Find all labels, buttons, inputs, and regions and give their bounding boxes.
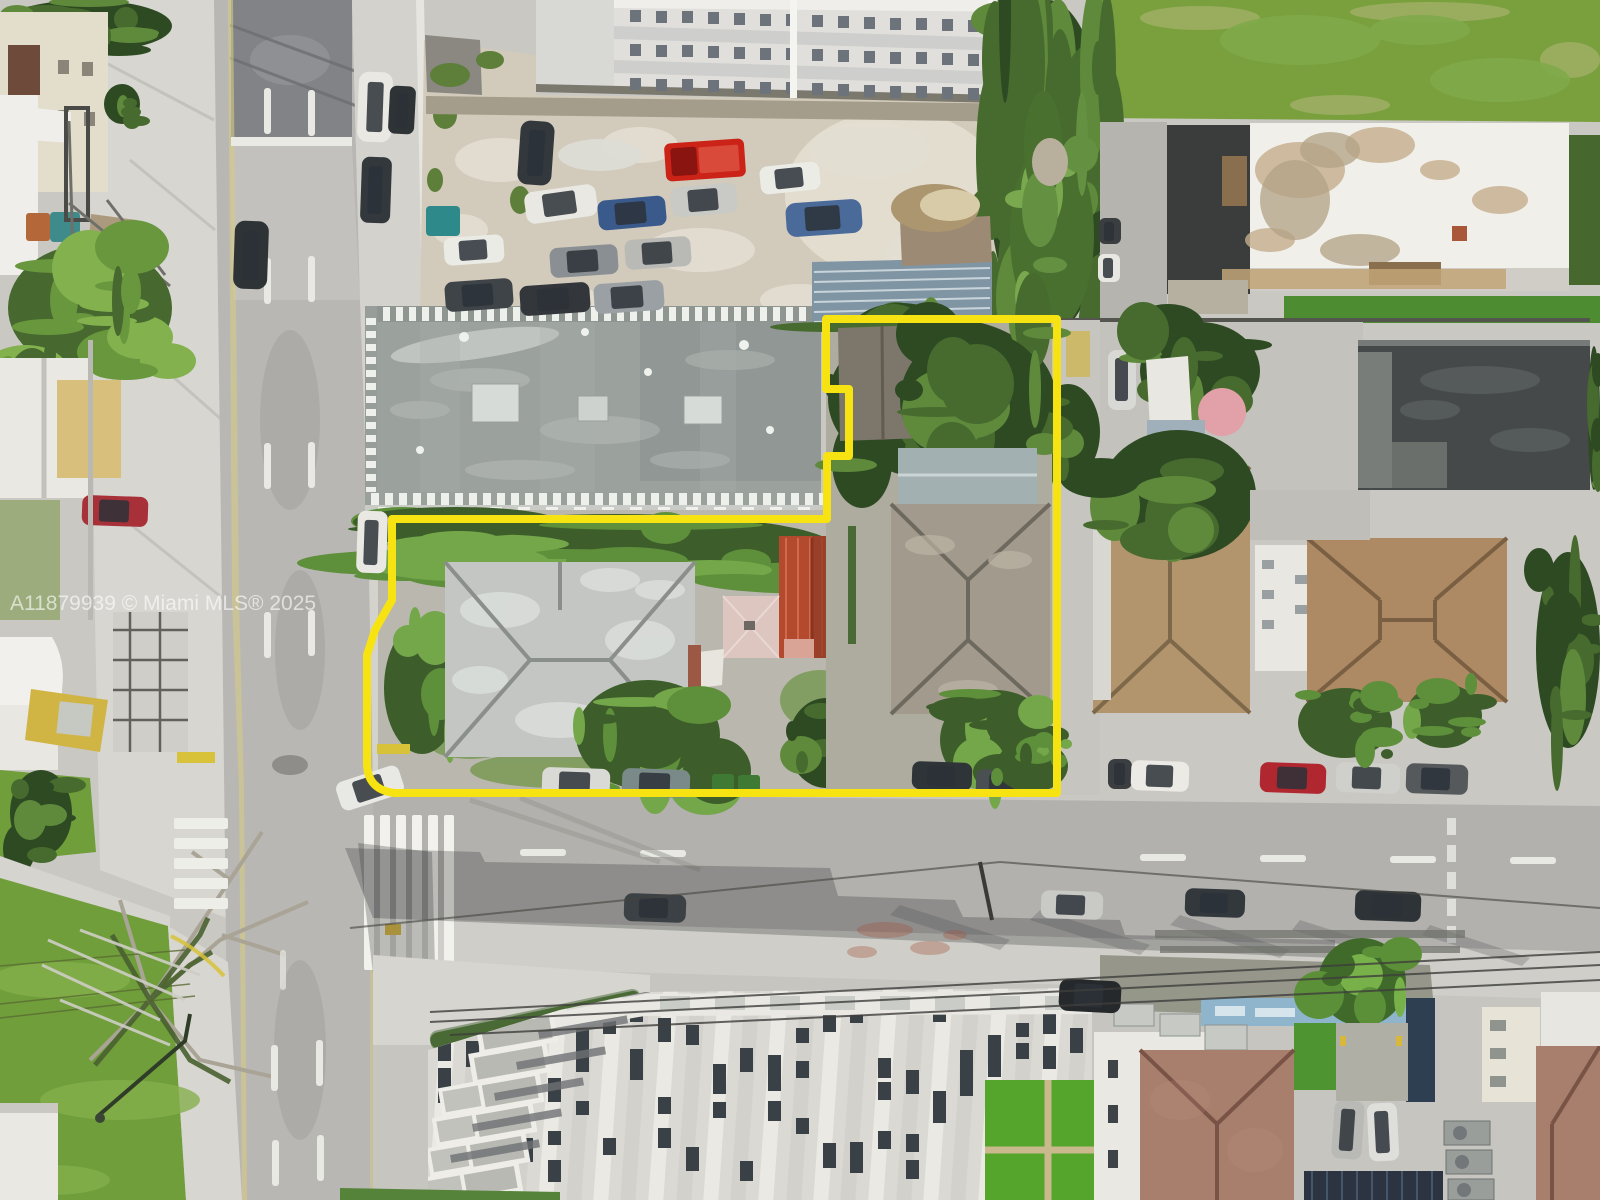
svg-text:A11879939 © Miami MLS® 2025: A11879939 © Miami MLS® 2025: [10, 592, 316, 615]
